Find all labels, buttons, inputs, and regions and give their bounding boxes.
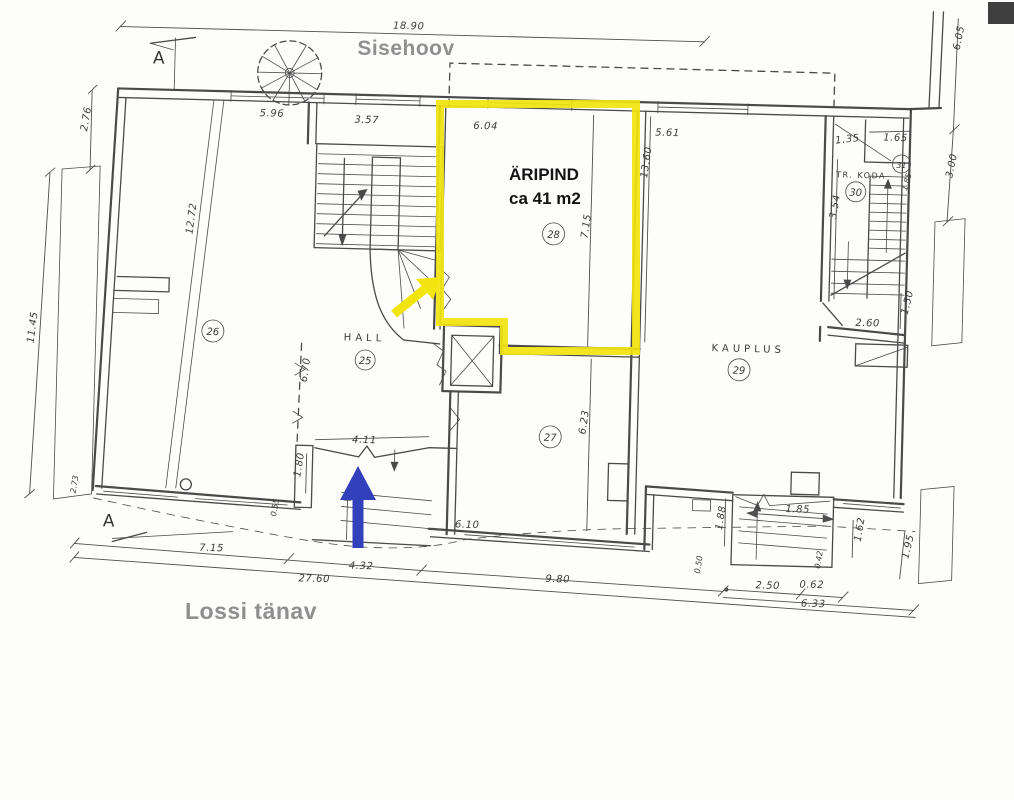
dim-recess-w: 2.50 <box>755 580 780 592</box>
room-30-number: 30 <box>849 188 862 199</box>
dim-room27-w: 6.10 <box>455 519 480 531</box>
dim-step: 0.55 <box>269 498 281 517</box>
dim-left-upper: 2.76 <box>79 106 94 132</box>
dim-room26-len: 12.72 <box>184 202 199 235</box>
dashed-lines <box>92 54 926 562</box>
dim-room28-w: 6.04 <box>473 121 498 133</box>
dim-landing-w: 2.60 <box>855 318 880 330</box>
dim-trkoda-w: 1.35 <box>835 133 861 147</box>
dim-left-wall: 11.45 <box>26 311 41 344</box>
dim-depth: 1.62 <box>853 516 868 542</box>
dim-stair-w: 3.57 <box>354 115 379 127</box>
room-27-number: 27 <box>544 433 558 444</box>
digital-overlay: Sisehoov Lossi tänav ÄRIPIND ca 41 m2 <box>185 2 1014 624</box>
room-29-number: 29 <box>732 366 745 377</box>
room-31-number: 31 <box>896 161 906 170</box>
room-kauplus-label: KAUPLUS <box>711 343 785 356</box>
dim-overall-top: 18.90 <box>393 21 425 33</box>
dim-room31-w: 1.65 <box>883 132 908 144</box>
courtyard-label: Sisehoov <box>357 37 454 60</box>
dim-bottom-seg3: 9.80 <box>545 574 570 586</box>
dim-step-a: 0.50 <box>693 555 705 574</box>
elevator-shaft <box>442 325 502 392</box>
highlight-title: ÄRIPIND <box>509 165 579 184</box>
dim-side: 1.95 <box>900 533 916 560</box>
scan-artifact <box>988 2 1014 24</box>
dim-jamb: 1.88 <box>714 505 729 531</box>
floor-plan: A A <box>0 0 1014 800</box>
section-marker-bottom: A <box>103 511 116 531</box>
section-marker-top: A <box>153 48 166 68</box>
room-labels: 26 HALL 25 27 28 KAUPLUS 29 TR. KODA 30 … <box>199 137 911 457</box>
dim-recess-s: 0.62 <box>799 579 824 591</box>
dim-bottom-seg4: 6.33 <box>801 598 826 610</box>
room-trkoda-label: TR. KODA <box>835 170 886 180</box>
room-28-number: 28 <box>547 230 560 241</box>
spiral-staircase <box>257 40 323 106</box>
room-hall-label: HALL <box>344 332 386 344</box>
scanned-floor-plan-page: A A <box>0 0 1014 800</box>
dim-door-w: 4.11 <box>352 435 377 447</box>
dim-room28-inner: 7.15 <box>580 213 595 239</box>
street-label: Lossi tänav <box>185 598 317 624</box>
dim-door: 1.85 <box>785 504 810 516</box>
dim-room28-len: 13.60 <box>639 146 655 179</box>
dim-right-lower: 3.00 <box>944 153 960 179</box>
hall-staircase <box>312 144 445 344</box>
dim-left-corner: 2.73 <box>69 475 81 494</box>
dim-bottom-overall: 27.60 <box>298 573 330 585</box>
section-markers: A A <box>102 35 245 544</box>
dim-kauplus-w: 5.61 <box>655 128 680 140</box>
dim-landing-d: 1.50 <box>900 289 916 316</box>
room-25-number: 25 <box>359 356 372 367</box>
exterior-walls <box>91 0 943 559</box>
dim-stair-run: 3.54 <box>828 194 843 220</box>
dim-bottom-seg2: 4.32 <box>349 561 374 573</box>
room-26-number: 26 <box>206 327 219 338</box>
door-knob-symbol <box>180 479 191 490</box>
dim-hall-len: 6.70 <box>299 357 314 383</box>
scanned-drawing: A A <box>19 0 970 619</box>
dim-entry-d: 1.80 <box>292 452 307 478</box>
highlight-area: ca 41 m2 <box>509 189 581 208</box>
dim-room26-w: 5.96 <box>259 108 284 120</box>
trkoda-staircase <box>831 175 907 299</box>
highlight-outline-room28 <box>440 104 636 351</box>
dim-right-upper: 6.05 <box>952 25 968 51</box>
dim-bottom-seg1: 7.15 <box>199 543 224 555</box>
